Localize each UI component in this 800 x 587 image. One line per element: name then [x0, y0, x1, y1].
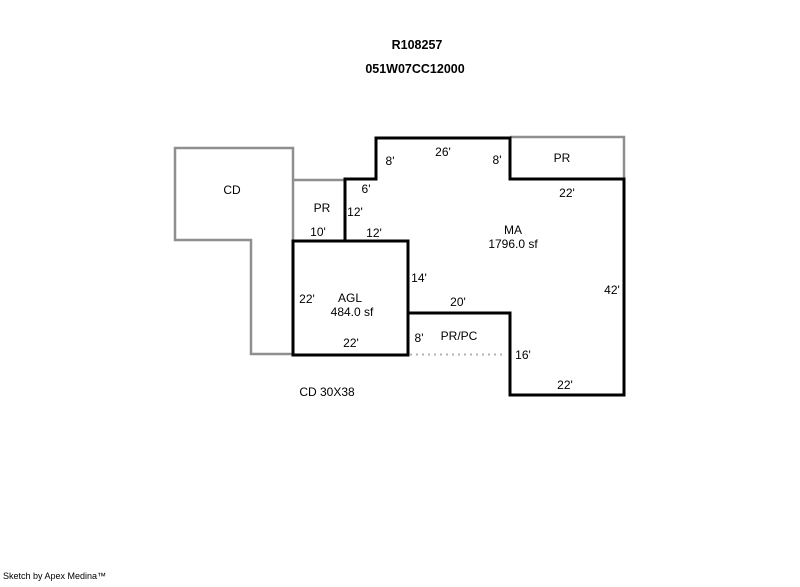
area-label-cd: CD [223, 184, 240, 196]
area-sqft-agl: 484.0 sf [331, 306, 374, 318]
dim-prpc-left-8ft: 8' [415, 332, 424, 344]
dim-agl-left-22ft: 22' [299, 293, 315, 305]
area-label-pr-left: PR [314, 202, 331, 214]
title-map-taxlot: 051W07CC12000 [365, 63, 464, 76]
dim-top-26ft: 26' [435, 146, 451, 158]
dim-prpc-right-16ft: 16' [515, 349, 531, 361]
dim-pr-left-10ft: 10' [310, 226, 326, 238]
dim-pr-right-22ft: 22' [559, 187, 575, 199]
area-label-prpc: PR/PC [441, 330, 478, 342]
cd-outline [175, 148, 293, 354]
dim-top-left-8ft: 8' [386, 155, 395, 167]
area-label-ma: MA [504, 224, 522, 236]
dim-prpc-top-20ft: 20' [450, 296, 466, 308]
dim-notch-12ft-horizontal: 12' [366, 227, 382, 239]
dim-top-right-8ft: 8' [493, 154, 502, 166]
dim-bottom-22ft: 22' [557, 379, 573, 391]
note-cd-size: CD 30X38 [299, 386, 354, 398]
sketch-page: R108257 051W07CC12000 CD PR PR MA 1796.0… [0, 0, 800, 587]
dim-agl-right-14ft: 14' [411, 272, 427, 284]
dim-notch-12ft-vertical: 12' [347, 206, 363, 218]
sketch-credit: Sketch by Apex Medina™ [3, 572, 106, 581]
dim-right-42ft: 42' [604, 284, 620, 296]
area-sqft-ma: 1796.0 sf [488, 238, 537, 250]
area-label-pr-right: PR [554, 152, 571, 164]
sketch-drawing [0, 0, 800, 587]
dim-agl-bottom-22ft: 22' [343, 337, 359, 349]
dim-notch-6ft: 6' [362, 183, 371, 195]
title-parcel-number: R108257 [392, 39, 443, 52]
area-label-agl: AGL [338, 292, 362, 304]
